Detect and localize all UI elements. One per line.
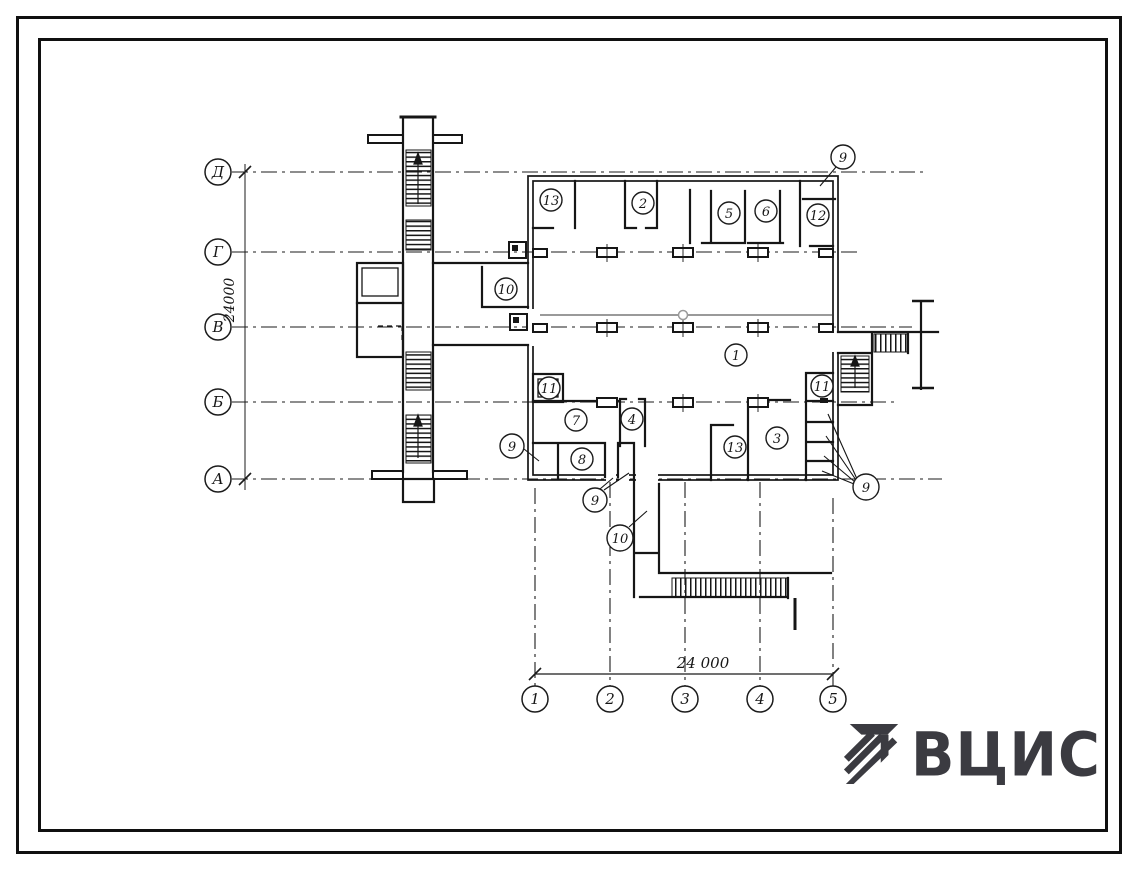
- callout-label-9c: 9: [591, 494, 599, 509]
- room-label-2: 2: [638, 197, 647, 212]
- axis-col-label-4: 5: [828, 690, 838, 708]
- axis-col-label-1: 2: [604, 690, 615, 708]
- crane-rail-line: [540, 311, 832, 320]
- shaft-marks: [512, 245, 828, 403]
- door-dashes: [378, 326, 402, 344]
- room-label-13a: 13: [543, 194, 560, 209]
- callout-label-9d: 9: [862, 481, 870, 496]
- scanned-floor-plan-page: Д Г В Б А 1 2 3 4 5 24000 24 000: [0, 0, 1139, 869]
- axis-col-label-2: 3: [680, 690, 690, 708]
- railings: [795, 300, 934, 630]
- room-label-11b: 11: [814, 380, 831, 395]
- room-label-8: 8: [578, 453, 586, 468]
- vcis-logo-text: ВЦИС: [911, 722, 1101, 788]
- room-label-13b: 13: [727, 441, 744, 456]
- room-label-10a: 10: [498, 283, 515, 298]
- room-label-1: 1: [732, 349, 740, 364]
- axis-row-label-1: Г: [212, 243, 224, 261]
- vcis-logo: ВЦИС: [842, 722, 1101, 786]
- axis-col-label-0: 1: [530, 690, 540, 708]
- room-label-12: 12: [810, 209, 827, 224]
- room-label-4: 4: [627, 413, 636, 428]
- room-label-6: 6: [762, 205, 770, 220]
- vcis-logo-icon: [842, 722, 904, 786]
- axis-row-label-3: Б: [211, 393, 223, 411]
- callout-label-9b: 9: [508, 440, 516, 455]
- axis-grid-lines: [232, 172, 942, 686]
- callout-label-10b: 10: [612, 532, 629, 547]
- room-label-5: 5: [725, 207, 733, 222]
- room-label-11a: 11: [541, 382, 558, 397]
- room-label-3: 3: [773, 432, 781, 447]
- axis-row-label-4: А: [211, 470, 223, 488]
- room-label-7: 7: [572, 414, 581, 429]
- axis-col-label-3: 4: [754, 690, 765, 708]
- dimension-horizontal: 24 000: [676, 654, 730, 672]
- axis-row-label-0: Д: [211, 163, 225, 181]
- callout-label-9a: 9: [839, 151, 847, 166]
- dimension-vertical: 24000: [222, 278, 238, 324]
